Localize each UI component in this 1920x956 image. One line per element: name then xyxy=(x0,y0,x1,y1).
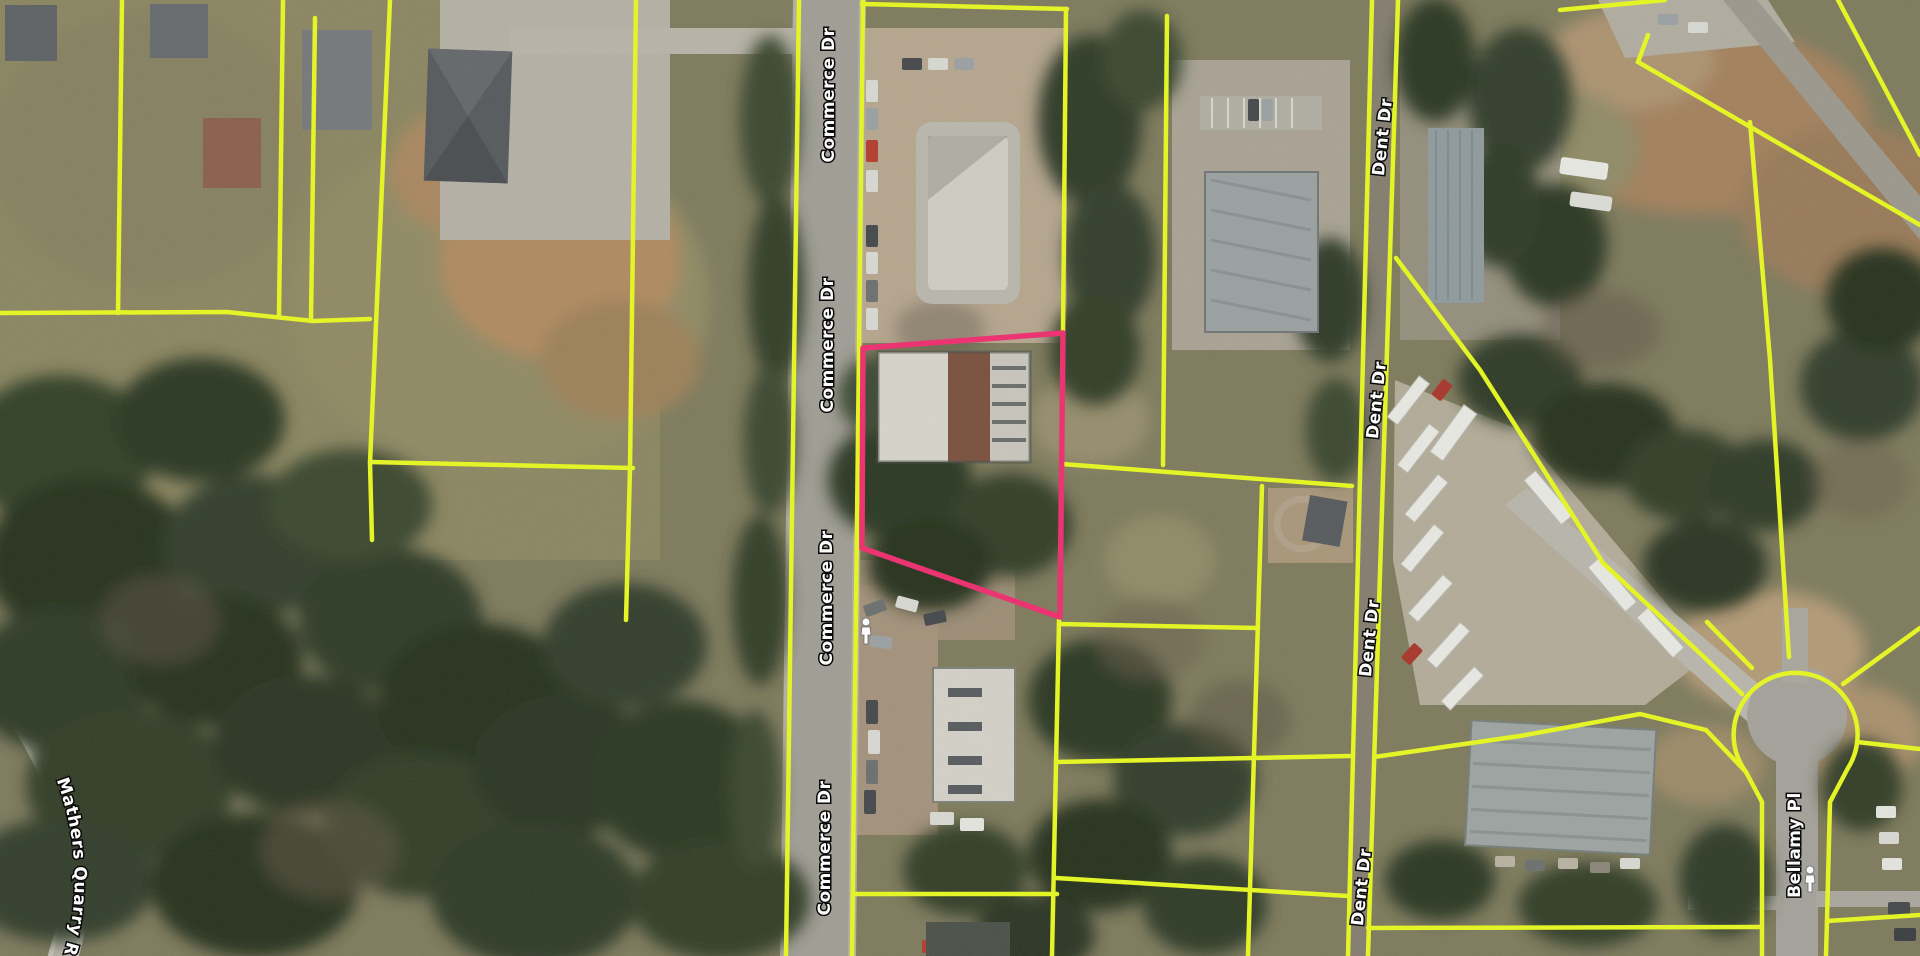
photo-grain-overlay xyxy=(0,0,1920,956)
aerial-parcel-map[interactable]: Commerce Dr Commerce Dr Commerce Dr Comm… xyxy=(0,0,1920,956)
